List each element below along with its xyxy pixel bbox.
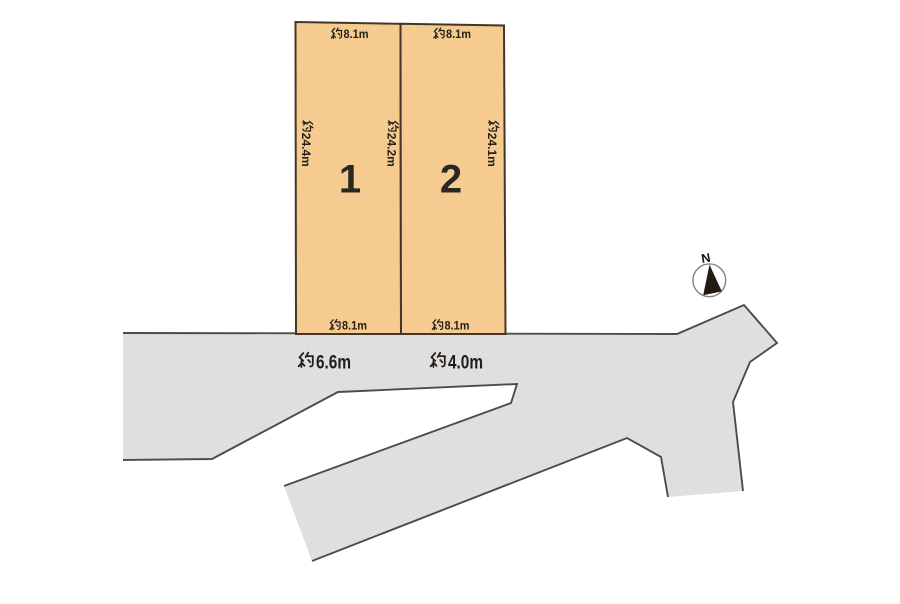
svg-text:8.1m: 8.1m	[445, 319, 470, 333]
svg-text:24.2m: 24.2m	[385, 133, 399, 167]
svg-text:24.1m: 24.1m	[485, 133, 499, 167]
svg-text:2: 2	[440, 157, 462, 201]
svg-text:24.4m: 24.4m	[299, 133, 313, 167]
svg-text:8.1m: 8.1m	[446, 27, 471, 41]
svg-text:8.1m: 8.1m	[344, 27, 369, 41]
svg-text:4.0m: 4.0m	[448, 353, 483, 374]
svg-text:1: 1	[339, 157, 361, 201]
svg-text:6.6m: 6.6m	[316, 353, 351, 374]
svg-text:8.1m: 8.1m	[342, 319, 367, 333]
